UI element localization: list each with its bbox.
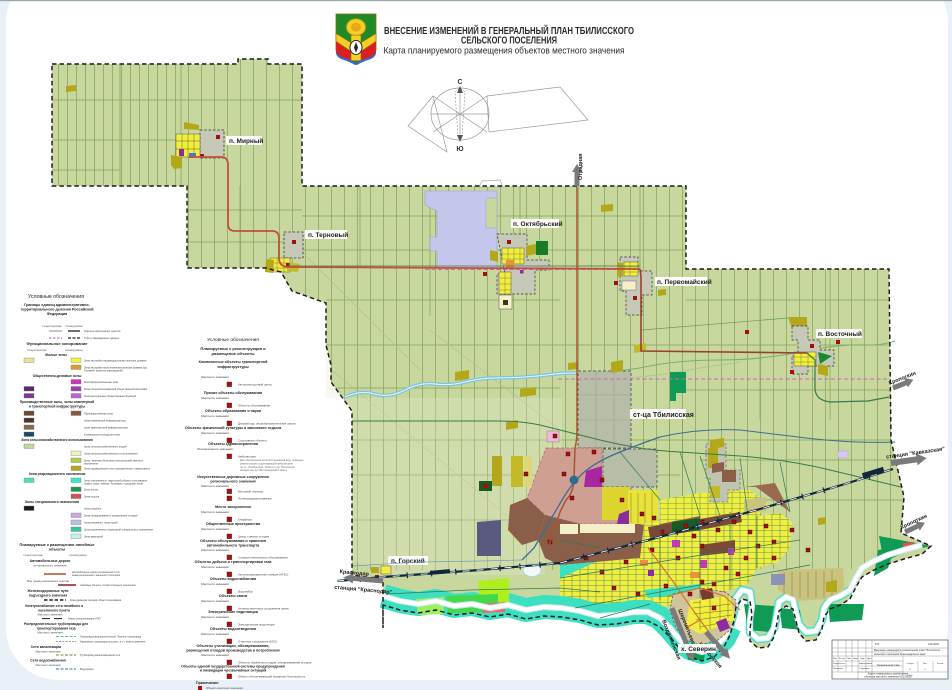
svg-text:Вне границ населенных пунктов: Вне границ населенных пунктов bbox=[27, 579, 69, 583]
svg-text:Зона садоводческих или огородн: Зона садоводческих или огороднических то… bbox=[84, 466, 150, 470]
svg-text:Прочие объекты обслуживания: Прочие объекты обслуживания bbox=[204, 391, 262, 395]
svg-text:Водопровод: Водопровод bbox=[80, 668, 94, 671]
svg-text:Изм: Изм bbox=[833, 658, 837, 660]
svg-text:Объекты обслуживания и хранени: Объекты обслуживания и хранения bbox=[200, 539, 266, 543]
svg-text:Объекты обслуживания: Объекты обслуживания bbox=[238, 404, 270, 408]
svg-text:существующие: существующие bbox=[42, 324, 62, 328]
svg-text:Детский сад, общеобразовательн: Детский сад, общеобразовательная школа bbox=[238, 422, 296, 426]
svg-text:Общественно-деловые зоны: Общественно-деловые зоны bbox=[33, 374, 82, 378]
svg-text:х. Северин: х. Северин bbox=[681, 646, 716, 653]
svg-text:Центр станицы и парки: Центр станицы и парки bbox=[238, 535, 270, 539]
svg-text:п. Первомайский: п. Первомайский bbox=[657, 278, 712, 286]
svg-text:671: 671 bbox=[875, 642, 880, 646]
svg-text:Местного значения: Местного значения bbox=[201, 396, 229, 400]
svg-text:Гладченко: Гладченко bbox=[859, 668, 870, 670]
svg-text:Многофункциональная зона: Многофункциональная зона bbox=[84, 380, 118, 384]
svg-text:планируемые: планируемые bbox=[65, 324, 83, 328]
svg-text:Стадия: Стадия bbox=[907, 663, 914, 665]
svg-text:существующие: существующие bbox=[23, 553, 43, 557]
svg-text:Объекты физической культуры и: Объекты физической культуры и массового … bbox=[185, 426, 282, 430]
svg-text:Место захоронения: Место захоронения bbox=[215, 505, 251, 509]
svg-text:п. Восточный: п. Восточный bbox=[818, 330, 862, 338]
svg-text:Сети водоснабжения: Сети водоснабжения bbox=[30, 658, 65, 662]
svg-text:Зона центральных общественных: Зона центральных общественных функций bbox=[84, 394, 137, 398]
svg-text:территориального деления Росси: территориального деления Российской bbox=[20, 308, 94, 312]
svg-text:назначения: назначения bbox=[84, 463, 99, 466]
svg-text:Зона отдыха: Зона отдыха bbox=[84, 494, 100, 498]
svg-text:Местного значения: Местного значения bbox=[38, 613, 63, 617]
svg-text:Лист: Лист bbox=[847, 658, 851, 660]
svg-text:и ликвидации чрезвычайных ситу: и ликвидации чрезвычайных ситуаций bbox=[200, 668, 266, 672]
svg-text:регионального значения: регионального значения bbox=[210, 480, 255, 484]
svg-text:сельского поселения Краснодарс: сельского поселения Краснодарского края bbox=[874, 652, 926, 656]
svg-text:123-2020: 123-2020 bbox=[928, 642, 940, 646]
svg-text:Объекты местного значения: Объекты местного значения bbox=[206, 686, 243, 690]
svg-text:объекты: объекты bbox=[49, 548, 66, 552]
svg-text:Автотранспортный центр: Автотранспортный центр bbox=[238, 383, 272, 387]
svg-text:Слои утвержденных данных: Слои утвержденных данных bbox=[84, 336, 120, 340]
svg-text:Местного значения: Местного значения bbox=[201, 484, 229, 488]
svg-text:Местного значения: Местного значения bbox=[201, 632, 229, 636]
svg-text:Газопровод распределительный.: Газопровод распределительный. Перенос га… bbox=[80, 636, 142, 639]
svg-text:Проверил: Проверил bbox=[833, 668, 844, 670]
svg-text:Разработал: Разработал bbox=[833, 663, 846, 665]
svg-text:Электрические подстанции: Электрические подстанции bbox=[208, 610, 259, 614]
svg-text:Объекты связи: Объекты связи bbox=[219, 594, 248, 598]
svg-text:С: С bbox=[457, 79, 462, 86]
svg-text:Границы единиц административно: Границы единиц административно- bbox=[24, 303, 90, 307]
svg-text:п. Горский: п. Горский bbox=[391, 557, 425, 565]
svg-text:Местного значения: Местного значения bbox=[201, 414, 229, 418]
svg-text:Водозабор: Водозабор bbox=[238, 590, 253, 594]
svg-text:Очистные сооружения (КОС): Очистные сооружения (КОС) bbox=[238, 640, 277, 644]
svg-text:по ул. Октябрьской, 141А в ст-: по ул. Октябрьской, 141А в ст-це Тбилисс… bbox=[240, 465, 295, 469]
svg-text:Зона режимных территорий: Зона режимных территорий bbox=[84, 520, 118, 524]
svg-text:размещение объекты: размещение объекты bbox=[212, 351, 256, 356]
svg-text:ООО: ООО bbox=[907, 675, 912, 677]
svg-text:регионального значения: регионального значения bbox=[34, 564, 67, 568]
svg-text:автомобильного транспорта: автомобильного транспорта bbox=[207, 544, 260, 548]
svg-text:Местного значения: Местного значения bbox=[38, 631, 63, 635]
svg-text:Объекты образования и науки: Объекты образования и науки bbox=[205, 409, 262, 413]
svg-text:ст-ца Тбилисская: ст-ца Тбилисская bbox=[633, 411, 694, 419]
svg-text:Станция технического обслужива: Станция технического обслуживания bbox=[238, 556, 288, 560]
svg-text:Местного значения: Местного значения bbox=[201, 431, 229, 435]
svg-text:Жилые зоны: Жилые зоны bbox=[44, 353, 67, 357]
svg-text:Примечание:: Примечание: bbox=[196, 681, 219, 685]
svg-text:планируемые: планируемые bbox=[65, 348, 83, 352]
svg-text:Зона складирования и захоронен: Зона складирования и захоронения отходов bbox=[84, 513, 138, 517]
svg-text:Местного значения: Местного значения bbox=[201, 548, 229, 552]
svg-text:Электроснабжение сети линейног: Электроснабжение сети линейного и bbox=[25, 604, 83, 608]
svg-text:Граница населенных пунктов: Граница населенных пунктов bbox=[84, 329, 121, 333]
svg-text:Амбулатория: Амбулатория bbox=[238, 455, 256, 459]
svg-text:Объект обеспечивающий пожарную: Объект обеспечивающий пожарную безопасно… bbox=[238, 675, 306, 679]
svg-text:Объекты утилизации, обезврежив: Объекты утилизации, обезвреживания, bbox=[197, 644, 270, 648]
svg-text:Сети канализации: Сети канализации bbox=[31, 645, 62, 649]
svg-text:Местного значения: Местного значения bbox=[201, 582, 229, 586]
svg-text:п. Октябрьский: п. Октябрьский bbox=[513, 220, 563, 228]
svg-text:8 этажей, включая мансардный): 8 этажей, включая мансардный) bbox=[84, 369, 123, 373]
svg-text:мощностью до 150 посещений в с: мощностью до 150 посещений в смену bbox=[240, 468, 288, 472]
svg-text:Зона лесов: Зона лесов bbox=[84, 487, 98, 491]
svg-text:Зона кладбищ: Зона кладбищ bbox=[84, 506, 102, 510]
svg-text:инфраструктуры: инфраструктуры bbox=[217, 365, 248, 369]
svg-text:Планируемые к размещению линей: Планируемые к размещению линейные bbox=[19, 543, 94, 547]
svg-text:Общественные пространства: Общественные пространства bbox=[206, 522, 261, 526]
svg-text:размещения отходов производств: размещения отходов производства и потреб… bbox=[186, 649, 279, 653]
svg-text:Путепроводная развязка: Путепроводная развязка bbox=[238, 497, 272, 501]
svg-text:Распределительные трубопроводы: Распределительные трубопроводы для bbox=[24, 622, 88, 626]
svg-text:Местного значения: Местного значения bbox=[201, 510, 229, 514]
svg-text:Подп: Подп bbox=[860, 658, 865, 660]
svg-text:Местного значения: Местного значения bbox=[36, 649, 61, 653]
svg-text:планируемые: планируемые bbox=[69, 553, 87, 557]
svg-text:п. Мирный: п. Мирный bbox=[229, 137, 263, 145]
svg-text:Условные обозначения: Условные обозначения bbox=[207, 337, 259, 343]
svg-text:Зона сельскохозяйственного исп: Зона сельскохозяйственного использования bbox=[84, 451, 138, 455]
svg-text:Зона транспортной инфраструкту: Зона транспортной инфраструктуры bbox=[84, 425, 128, 429]
svg-text:Железнодорожные пути: Железнодорожные пути bbox=[27, 589, 69, 593]
svg-text:межмуниципального значения IV: межмуниципального значения IV категории bbox=[72, 574, 121, 577]
svg-text:Искусственные дорожные сооруже: Искусственные дорожные сооружения bbox=[197, 475, 269, 479]
svg-text:Зона акваторий: Зона акваторий bbox=[84, 534, 103, 538]
svg-text:Отрадная: Отрадная bbox=[578, 154, 584, 180]
svg-text:Регионального значения: Регионального значения bbox=[197, 447, 233, 451]
svg-text:Надземные газопроводы высокого: Надземные газопроводы высокого, в т.ч. н… bbox=[80, 641, 146, 644]
svg-text:Трубопровод канализационной се: Трубопровод канализационной сети bbox=[80, 654, 121, 657]
svg-text:Зоны специального назначения: Зоны специального назначения bbox=[25, 500, 79, 504]
svg-text:№док: №док bbox=[853, 657, 858, 660]
svg-text:Для обеспечения жителей поселе: Для обеспечения жителей поселения мед. п… bbox=[240, 458, 304, 462]
svg-text:Линия электропередачи ЛЭП: Линия электропередачи ЛЭП bbox=[68, 618, 101, 621]
svg-text:Зоны движения поездов, общего: Зоны движения поездов, общего пользовани… bbox=[70, 599, 122, 602]
svg-text:Автогазозаправочная станция (А: Автогазозаправочная станция (АГЗС) bbox=[238, 573, 288, 577]
svg-text:существующие: существующие bbox=[27, 348, 47, 352]
svg-text:объектов местного значения М 1: объектов местного значения М 1:25000 bbox=[864, 675, 912, 679]
svg-text:Мирошников: Мирошников bbox=[859, 663, 873, 665]
svg-text:Зона сельскохозяйственных угод: Зона сельскохозяйственных угодий bbox=[84, 444, 127, 448]
svg-text:Объекты добычи и транспортиров: Объекты добычи и транспортировки газа bbox=[195, 560, 273, 564]
svg-text:Лист: Лист bbox=[923, 663, 927, 665]
svg-text:подъездного значения: подъездного значения bbox=[29, 594, 67, 598]
svg-text:Генеральный план: Генеральный план bbox=[877, 663, 900, 667]
svg-text:линейные объекты соответствующ: линейные объекты соответствующего назнач… bbox=[80, 584, 136, 587]
svg-text:Местного значения: Местного значения bbox=[201, 565, 229, 569]
svg-text:Коммунально-складская зона: Коммунально-складская зона bbox=[84, 432, 120, 436]
svg-text:Листов: Листов bbox=[937, 663, 944, 665]
svg-text:Зона рекреационного назначения: Зона рекреационного назначения bbox=[29, 472, 86, 476]
svg-text:Кол.уч: Кол.уч bbox=[839, 658, 845, 660]
svg-text:Зона застройки индивидуальными: Зона застройки индивидуальными жилыми до… bbox=[84, 358, 147, 362]
svg-text:и транспортной инфраструктуры: и транспортной инфраструктуры bbox=[29, 404, 85, 408]
svg-text:Местного значения: Местного значения bbox=[201, 527, 229, 531]
svg-text:(парки, сады, скверы, бульвары: (парки, сады, скверы, бульвары, городски… bbox=[84, 482, 143, 486]
svg-text:Электрическая подстанция: Электрическая подстанция bbox=[238, 623, 275, 627]
svg-text:Местного значения: Местного значения bbox=[201, 599, 229, 603]
svg-text:Зона специализированной общест: Зона специализированной общественной зас… bbox=[84, 387, 148, 391]
svg-text:Условные обозначения: Условные обозначения bbox=[28, 294, 84, 300]
svg-text:п. Терновый: п. Терновый bbox=[308, 231, 348, 239]
svg-text:Зона озелененных территорий сп: Зона озелененных территорий специального… bbox=[84, 527, 154, 531]
svg-text:реконструкция существующей амб: реконструкция существующей амбулатории bbox=[240, 461, 293, 465]
svg-text:Зона инженерной инфраструктуры: Зона инженерной инфраструктуры bbox=[84, 418, 126, 422]
svg-text:Местного значения: Местного значения bbox=[201, 653, 229, 657]
svg-text:Внесение изменений в генеральн: Внесение изменений в генеральный план Тб… bbox=[874, 648, 941, 652]
svg-text:Местного значения: Местного значения bbox=[201, 615, 229, 619]
svg-text:Производственная зона: Производственная зона bbox=[84, 411, 113, 415]
svg-text:Кладбище: Кладбище bbox=[238, 518, 252, 522]
svg-text:Производственные зоны, зоны ин: Производственные зоны, зоны инженерной bbox=[20, 400, 94, 404]
svg-text:Объекты здравоохранения: Объекты здравоохранения bbox=[208, 442, 258, 446]
svg-text:Объекты водоснабжения: Объекты водоснабжения bbox=[210, 577, 256, 581]
svg-text:Карта планируемого размещения: Карта планируемого размещения объектов м… bbox=[384, 46, 625, 57]
svg-text:Функциональное зонирование: Функциональное зонирование bbox=[26, 341, 88, 346]
svg-text:Местного значения: Местного значения bbox=[36, 663, 61, 667]
svg-text:Зона сельскохозяйственного исп: Зона сельскохозяйственного использования bbox=[21, 438, 93, 442]
svg-text:Ю: Ю bbox=[456, 146, 463, 153]
svg-text:Мостовой переход: Мостовой переход bbox=[238, 490, 263, 494]
svg-text:Комплексные объекты транспортн: Комплексные объекты транспортной bbox=[199, 360, 268, 364]
svg-text:Местного значения: Местного значения bbox=[201, 375, 229, 379]
svg-text:Федерация: Федерация bbox=[47, 312, 68, 316]
svg-text:Автомобильные дороги: Автомобильные дороги bbox=[30, 559, 71, 563]
svg-text:Объекты водоотведения: Объекты водоотведения bbox=[210, 627, 256, 631]
